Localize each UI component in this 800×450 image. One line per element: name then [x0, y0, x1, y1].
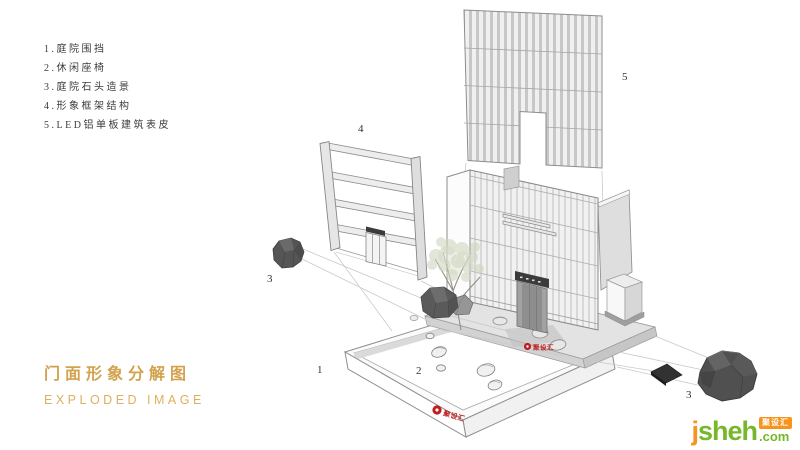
callout-rock-right: 3 — [686, 390, 692, 401]
legend-item: 5.LED铝单板建筑表皮 — [44, 116, 171, 135]
legend-item: 3.庭院石头造景 — [44, 78, 171, 97]
frame-left-post — [320, 142, 340, 251]
page-title-cn: 门面形象分解图 — [44, 360, 205, 384]
site-logo: jsheh 聚设汇 .com — [691, 417, 792, 443]
callout-frame: 4 — [358, 124, 364, 135]
callout-rock-left: 3 — [267, 274, 273, 285]
page-title-en: EXPLODED IMAGE — [44, 393, 205, 407]
callout-skin: 5 — [622, 72, 628, 83]
logo-right-stack: 聚设汇 .com — [759, 417, 792, 443]
frame-door — [366, 233, 386, 267]
logo-tld: .com — [759, 430, 789, 443]
callout-seats: 2 — [416, 366, 422, 377]
utility-box — [605, 274, 644, 326]
image-frame-structure — [320, 142, 427, 281]
rock-right — [698, 351, 757, 401]
logo-badge: 聚设汇 — [759, 417, 792, 429]
rock-left — [273, 238, 304, 268]
logo-wordmark: jsheh — [691, 421, 757, 443]
legend-item: 4.形象框架结构 — [44, 97, 171, 116]
parapet-block — [504, 166, 519, 190]
floor-mat — [651, 364, 682, 386]
watermark-text: 聚设汇 — [532, 343, 554, 352]
legend: 1.庭院围挡 2.休闲座椅 3.庭院石头造景 4.形象框架结构 5.LED铝单板… — [44, 40, 171, 135]
title-block: 门面形象分解图 EXPLODED IMAGE — [44, 360, 205, 407]
slide: 聚设汇 聚设汇 1.庭院围挡 2.休闲座椅 3.庭院石头造景 4.形象框架结构 … — [0, 0, 800, 450]
callout-platform: 1 — [317, 365, 323, 376]
legend-item: 1.庭院围挡 — [44, 40, 171, 59]
legend-item: 2.休闲座椅 — [44, 59, 171, 78]
logo-letters-sheh: sheh — [698, 416, 757, 446]
led-skin-panel — [464, 10, 602, 168]
